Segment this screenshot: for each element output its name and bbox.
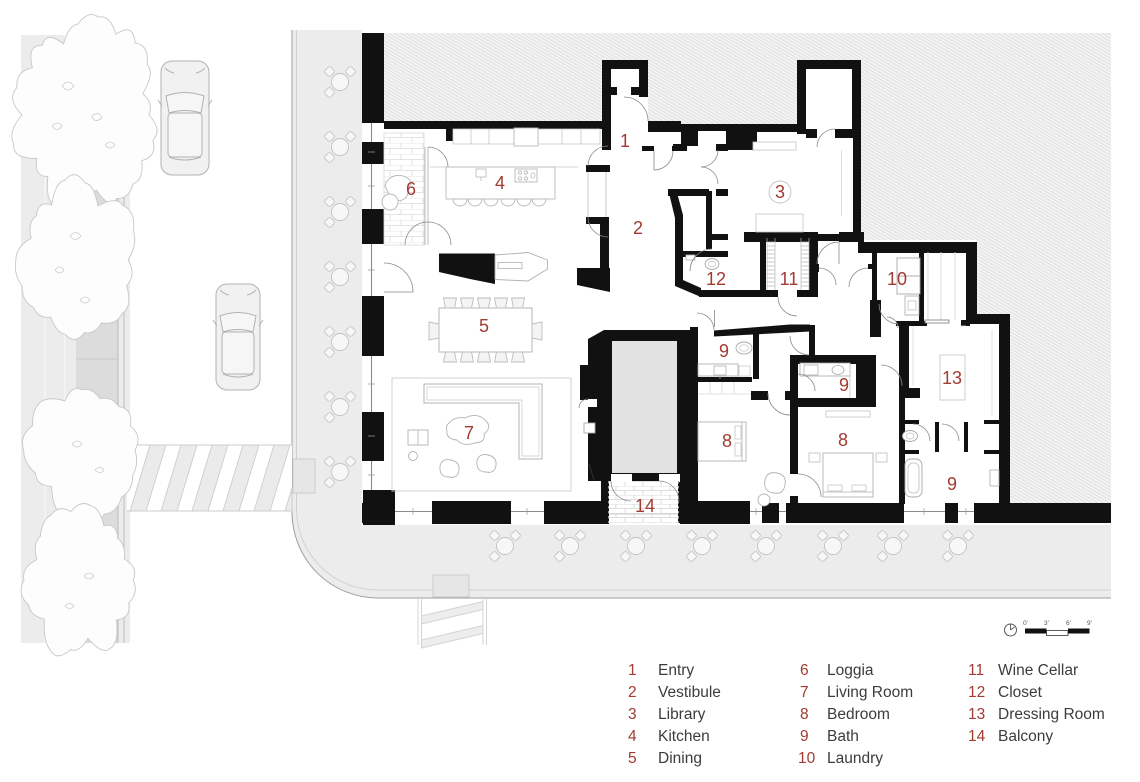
svg-text:8: 8 xyxy=(722,431,732,451)
svg-text:Kitchen: Kitchen xyxy=(658,728,710,745)
svg-text:7: 7 xyxy=(464,423,474,443)
svg-text:10: 10 xyxy=(798,750,816,767)
svg-text:Dining: Dining xyxy=(658,750,702,767)
svg-text:Living Room: Living Room xyxy=(827,684,913,701)
svg-text:Library: Library xyxy=(658,706,706,723)
svg-text:Dressing Room: Dressing Room xyxy=(998,706,1105,723)
svg-text:6: 6 xyxy=(800,662,809,679)
svg-text:3: 3 xyxy=(775,182,785,202)
svg-text:2: 2 xyxy=(633,218,643,238)
svg-text:Entry: Entry xyxy=(658,662,694,679)
svg-text:Vestibule: Vestibule xyxy=(658,684,721,701)
svg-text:Wine Cellar: Wine Cellar xyxy=(998,662,1078,679)
svg-text:9: 9 xyxy=(800,728,809,745)
svg-text:14: 14 xyxy=(635,496,655,516)
svg-text:11: 11 xyxy=(780,269,799,289)
svg-text:12: 12 xyxy=(706,269,726,289)
svg-text:8: 8 xyxy=(838,430,848,450)
svg-text:0': 0' xyxy=(1023,620,1028,627)
svg-text:13: 13 xyxy=(968,706,985,723)
svg-text:9: 9 xyxy=(719,341,729,361)
svg-text:9: 9 xyxy=(839,375,849,395)
svg-text:11: 11 xyxy=(968,662,984,679)
svg-text:8: 8 xyxy=(800,706,809,723)
svg-text:Bedroom: Bedroom xyxy=(827,706,890,723)
svg-text:5: 5 xyxy=(628,750,637,767)
svg-text:Balcony: Balcony xyxy=(998,728,1053,745)
svg-text:7: 7 xyxy=(800,684,809,701)
svg-text:3': 3' xyxy=(1044,620,1049,627)
svg-text:6: 6 xyxy=(406,179,416,199)
svg-text:10: 10 xyxy=(887,269,907,289)
svg-text:4: 4 xyxy=(495,173,505,193)
svg-text:9': 9' xyxy=(1087,620,1092,627)
svg-text:Loggia: Loggia xyxy=(827,662,874,679)
svg-text:9: 9 xyxy=(947,474,957,494)
svg-text:3: 3 xyxy=(628,706,637,723)
svg-text:5: 5 xyxy=(479,316,489,336)
svg-text:14: 14 xyxy=(968,728,986,745)
svg-text:4: 4 xyxy=(628,728,637,745)
svg-text:13: 13 xyxy=(942,368,962,388)
svg-text:Bath: Bath xyxy=(827,728,859,745)
svg-text:6': 6' xyxy=(1066,620,1071,627)
svg-text:Laundry: Laundry xyxy=(827,750,883,767)
svg-text:12: 12 xyxy=(968,684,985,701)
svg-text:1: 1 xyxy=(620,131,630,151)
svg-text:1: 1 xyxy=(628,662,637,679)
svg-text:2: 2 xyxy=(628,684,637,701)
svg-text:Closet: Closet xyxy=(998,684,1043,701)
